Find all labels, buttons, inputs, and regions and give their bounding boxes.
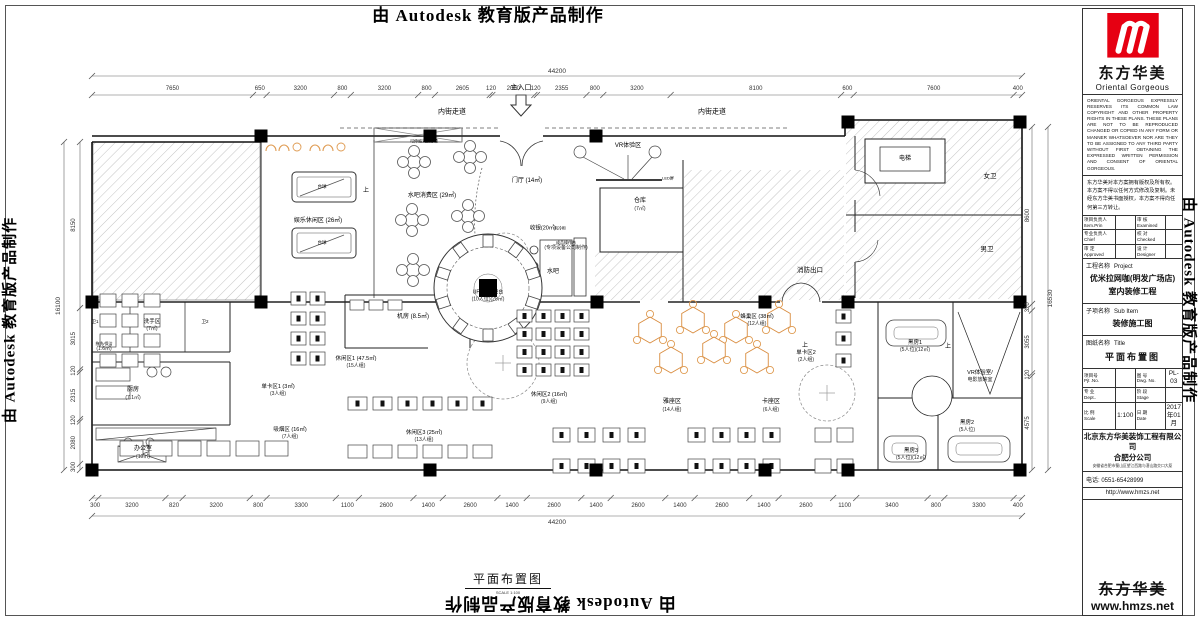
svg-text:120: 120 bbox=[71, 415, 77, 426]
svg-text:8100: 8100 bbox=[749, 86, 763, 92]
svg-text:1400: 1400 bbox=[757, 503, 771, 509]
svg-text:2355: 2355 bbox=[555, 86, 569, 92]
copyright-chinese: 东方华美对本方案拥有版权及所有权。本方案不得以任何方式修改及复制。未经东方华美书… bbox=[1083, 176, 1182, 216]
column-marker bbox=[255, 296, 268, 309]
column-marker bbox=[424, 130, 437, 143]
watermark-bottom: 由 Autodesk 教育版产品制作 bbox=[444, 593, 675, 618]
svg-text:2600: 2600 bbox=[380, 503, 394, 509]
column-marker bbox=[842, 464, 855, 477]
cad-sheet: 由 Autodesk 教育版产品制作 由 Autodesk 教育版产品制作 由 … bbox=[0, 0, 1200, 621]
column-marker bbox=[591, 296, 604, 309]
footer-logo: 东方华美 www.hmzs.net bbox=[1083, 578, 1182, 615]
column-marker bbox=[590, 130, 603, 143]
watermark-right: 由 Autodesk 教育版产品制作 bbox=[1180, 197, 1200, 403]
footer-logo-cn: 东方华美 bbox=[1083, 578, 1182, 599]
company-phone: 电话: 0551-65428999 bbox=[1083, 472, 1182, 488]
vr-zone bbox=[574, 146, 661, 179]
svg-text:1400: 1400 bbox=[589, 503, 603, 509]
svg-text:3300: 3300 bbox=[972, 503, 986, 509]
column-marker bbox=[590, 464, 603, 477]
column-marker bbox=[1014, 116, 1027, 129]
sheet-info-table: 项目号Pjt .No. 图 号Dwg. No.PL-03 专 业Dept.. 阶… bbox=[1083, 369, 1182, 430]
project-label: 工程名称Project bbox=[1083, 259, 1182, 271]
svg-text:3055: 3055 bbox=[1025, 335, 1031, 349]
drawing-title: 平面布置图 SCALE 1:100 bbox=[465, 570, 551, 595]
title-block-row: 项目负责人Item.Prin 审 核Examined bbox=[1083, 216, 1182, 230]
logo-name-cn: 东方华美 bbox=[1083, 66, 1182, 83]
svg-text:1400: 1400 bbox=[505, 503, 519, 509]
svg-text:120: 120 bbox=[71, 365, 77, 376]
sheet-label: 图纸名称Title bbox=[1083, 336, 1182, 348]
column-marker bbox=[86, 296, 99, 309]
svg-text:120: 120 bbox=[486, 86, 497, 92]
company-name: 北京东方华美装饰工程有限公司 合肥分公司 bbox=[1083, 430, 1182, 462]
column-marker bbox=[842, 296, 855, 309]
svg-text:3200: 3200 bbox=[210, 503, 224, 509]
svg-text:800: 800 bbox=[422, 86, 433, 92]
svg-text:44200: 44200 bbox=[548, 68, 566, 75]
svg-text:400: 400 bbox=[1013, 503, 1024, 509]
company-address: 安徽省合肥市蜀山区望江西路与潜山路交口大厦 bbox=[1083, 463, 1182, 472]
column-marker bbox=[424, 464, 437, 477]
watermark-left: 由 Autodesk 教育版产品制作 bbox=[0, 217, 20, 423]
footer-logo-url: www.hmzs.net bbox=[1083, 599, 1182, 613]
svg-text:320: 320 bbox=[1025, 302, 1031, 313]
company-logo: 东方华美 Oriental Gorgeous bbox=[1083, 9, 1182, 95]
svg-text:800: 800 bbox=[337, 86, 348, 92]
svg-text:3200: 3200 bbox=[294, 86, 308, 92]
svg-text:1100: 1100 bbox=[838, 503, 852, 509]
svg-text:16530: 16530 bbox=[1047, 289, 1054, 307]
entrance-arrow-icon bbox=[511, 95, 531, 116]
project-name: 优米拉网咖(明发广场店) 室内装修工程 bbox=[1083, 271, 1182, 304]
drawing-title-text: 平面布置图 bbox=[465, 570, 551, 589]
svg-text:2600: 2600 bbox=[463, 503, 477, 509]
subitem-value: 装修施工图 bbox=[1083, 316, 1182, 336]
column-marker bbox=[759, 464, 772, 477]
svg-text:3200: 3200 bbox=[378, 86, 392, 92]
svg-text:2600: 2600 bbox=[799, 503, 813, 509]
copyright-english: ORIENTAL GORGEOUS EXPRESSLY RESERVES ITS… bbox=[1083, 95, 1182, 176]
svg-text:2600: 2600 bbox=[547, 503, 561, 509]
svg-text:16100: 16100 bbox=[55, 297, 62, 315]
subitem-label: 子项名称Sub Item bbox=[1083, 304, 1182, 316]
logo-mark-icon bbox=[1105, 13, 1161, 61]
column-marker bbox=[86, 464, 99, 477]
title-block: 东方华美 Oriental Gorgeous ORIENTAL GORGEOUS… bbox=[1082, 8, 1183, 616]
svg-text:3200: 3200 bbox=[630, 86, 644, 92]
svg-text:300: 300 bbox=[71, 461, 77, 472]
svg-text:650: 650 bbox=[255, 86, 266, 92]
svg-text:7650: 7650 bbox=[166, 86, 180, 92]
svg-text:1100: 1100 bbox=[341, 503, 355, 509]
title-block-row: 专 业Dept.. 阶 段Stage bbox=[1083, 388, 1182, 402]
svg-text:3015: 3015 bbox=[71, 331, 77, 345]
title-block-row: 审 定Approved 设 计Designer bbox=[1083, 244, 1182, 258]
svg-text:2080: 2080 bbox=[71, 435, 77, 449]
svg-text:300: 300 bbox=[90, 503, 101, 509]
svg-text:800: 800 bbox=[590, 86, 601, 92]
svg-text:3400: 3400 bbox=[885, 503, 899, 509]
company-website: http://www.hmzs.net bbox=[1083, 488, 1182, 500]
svg-text:2315: 2315 bbox=[71, 388, 77, 402]
floor-plan-svg: 7650650320080032008002605120200012023558… bbox=[0, 0, 1200, 621]
svg-text:7600: 7600 bbox=[927, 86, 941, 92]
svg-text:820: 820 bbox=[169, 503, 180, 509]
title-block-row: 比 例Scale1:100 日 期Date2017年01月 bbox=[1083, 402, 1182, 429]
svg-text:1400: 1400 bbox=[673, 503, 687, 509]
svg-text:3200: 3200 bbox=[125, 503, 139, 509]
svg-text:800: 800 bbox=[931, 503, 942, 509]
column-marker bbox=[1014, 464, 1027, 477]
sheet-name: 平面布置图 bbox=[1083, 348, 1182, 369]
svg-text:2600: 2600 bbox=[715, 503, 729, 509]
svg-text:3300: 3300 bbox=[295, 503, 309, 509]
svg-text:2600: 2600 bbox=[631, 503, 645, 509]
title-block-row: 项目号Pjt .No. 图 号Dwg. No.PL-03 bbox=[1083, 369, 1182, 388]
column-marker bbox=[842, 116, 855, 129]
svg-text:1400: 1400 bbox=[421, 503, 435, 509]
svg-text:44200: 44200 bbox=[548, 519, 566, 526]
svg-text:800: 800 bbox=[253, 503, 264, 509]
svg-text:400: 400 bbox=[1013, 86, 1024, 92]
watermark-top: 由 Autodesk 教育版产品制作 bbox=[372, 1, 603, 26]
title-block-row: 专业负责人Chief 校 对Checked bbox=[1083, 230, 1182, 244]
svg-text:8600: 8600 bbox=[1025, 208, 1031, 222]
svg-text:120: 120 bbox=[531, 86, 542, 92]
svg-text:600: 600 bbox=[842, 86, 853, 92]
column-marker bbox=[759, 296, 772, 309]
personnel-table: 项目负责人Item.Prin 审 核Examined 专业负责人Chief 校 … bbox=[1083, 216, 1182, 259]
logo-name-en: Oriental Gorgeous bbox=[1083, 83, 1182, 92]
svg-text:4575: 4575 bbox=[1025, 416, 1031, 430]
svg-text:8150: 8150 bbox=[71, 218, 77, 232]
svg-text:2000: 2000 bbox=[507, 86, 521, 92]
svg-text:2605: 2605 bbox=[456, 86, 470, 92]
column-marker bbox=[255, 130, 268, 143]
